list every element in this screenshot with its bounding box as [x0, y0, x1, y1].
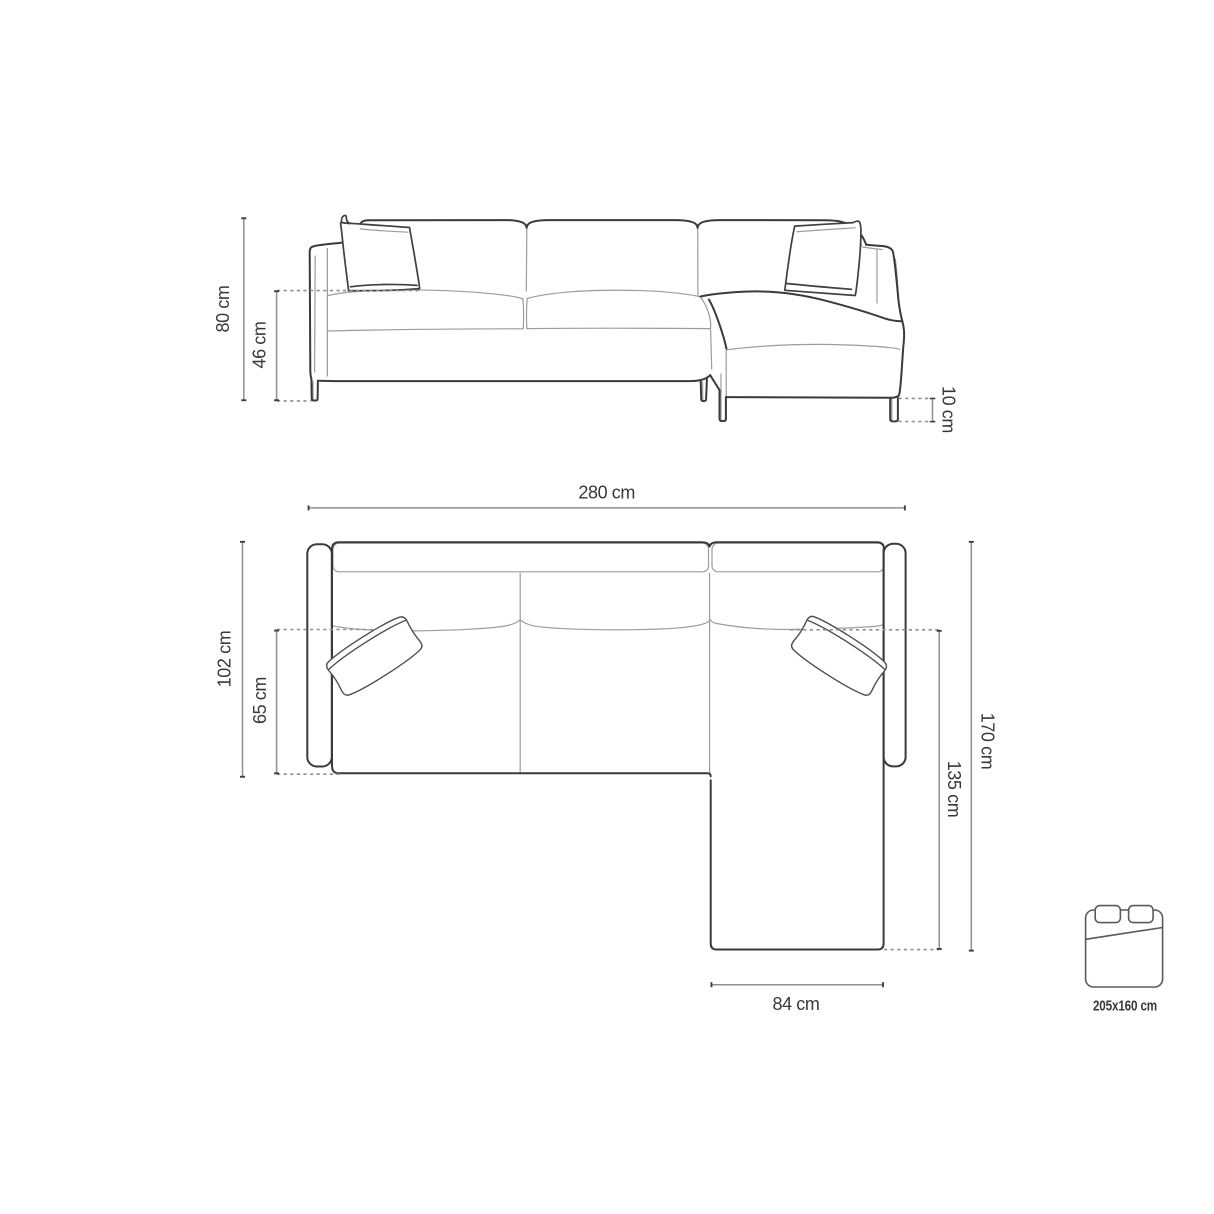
svg-text:205x160 cm: 205x160 cm: [1093, 997, 1157, 1014]
svg-text:170 cm: 170 cm: [978, 713, 998, 770]
svg-text:135 cm: 135 cm: [944, 761, 964, 818]
svg-text:65 cm: 65 cm: [250, 677, 270, 724]
svg-text:10 cm: 10 cm: [939, 386, 959, 433]
svg-text:84 cm: 84 cm: [772, 994, 819, 1014]
svg-text:46 cm: 46 cm: [250, 321, 270, 368]
svg-text:280 cm: 280 cm: [578, 483, 635, 503]
svg-text:102 cm: 102 cm: [215, 631, 235, 688]
svg-text:80 cm: 80 cm: [213, 285, 233, 332]
